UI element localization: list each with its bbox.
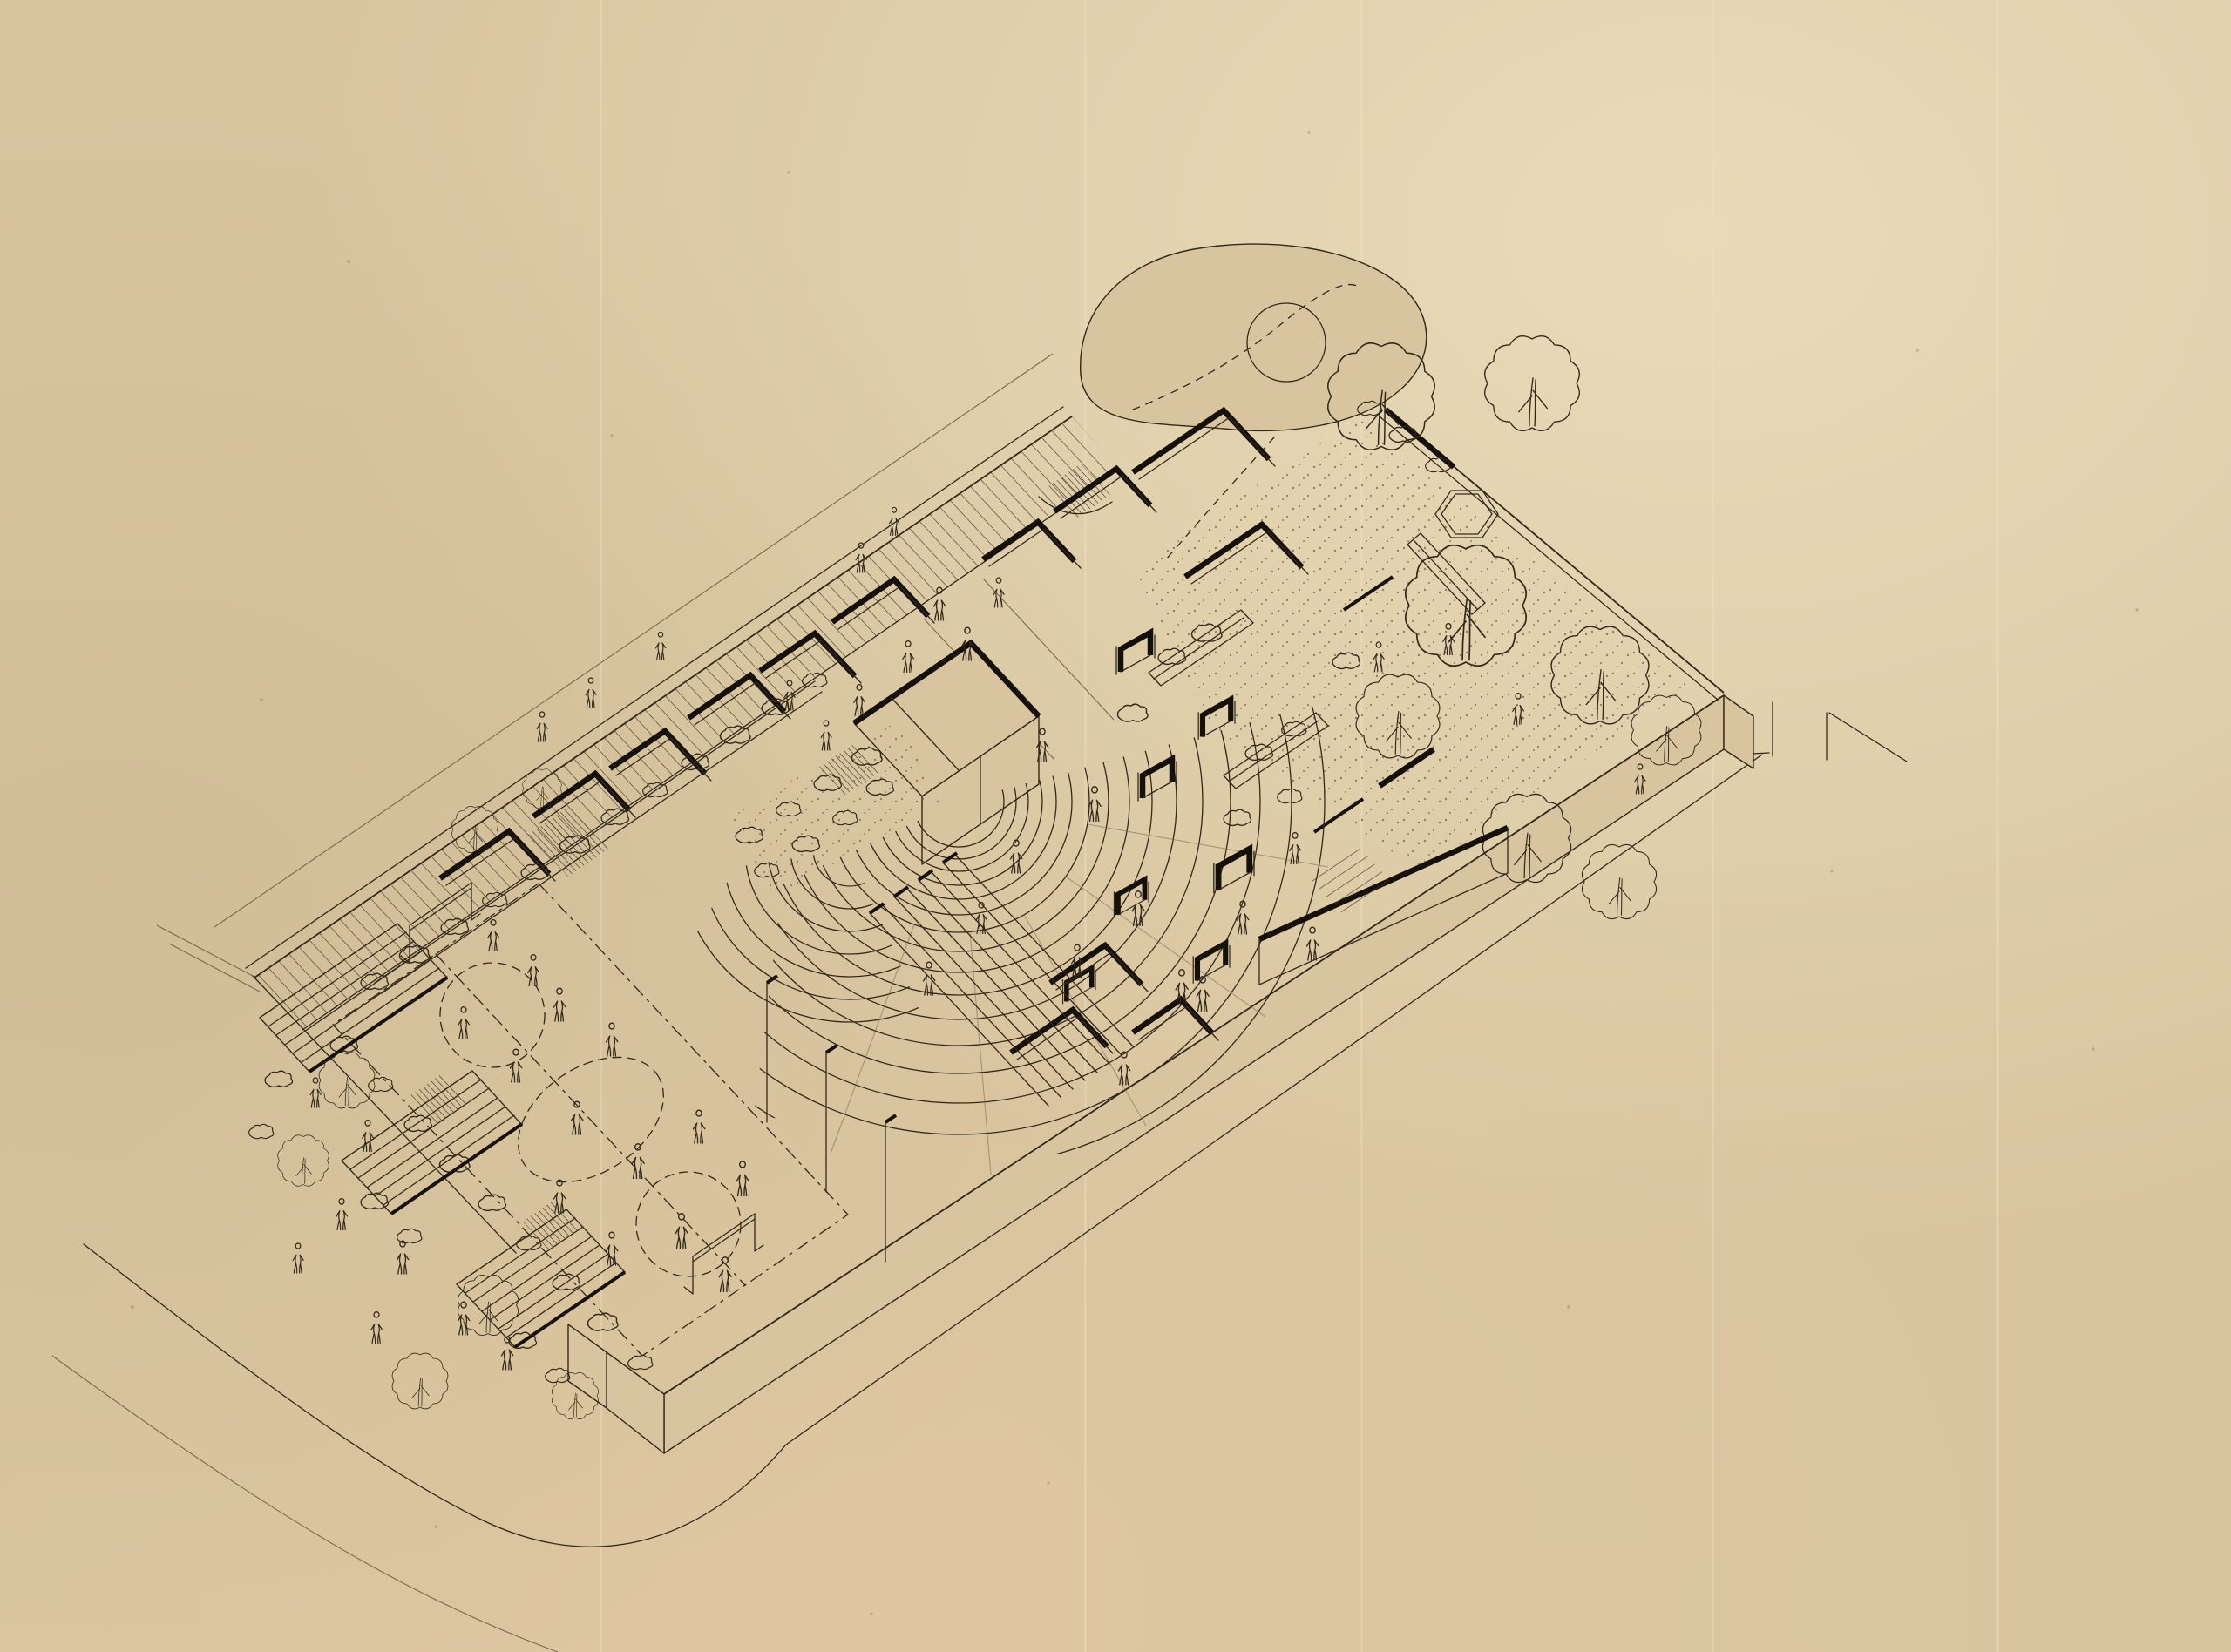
drawing-canvas [0,0,2231,1652]
paper-background [0,0,2231,1652]
